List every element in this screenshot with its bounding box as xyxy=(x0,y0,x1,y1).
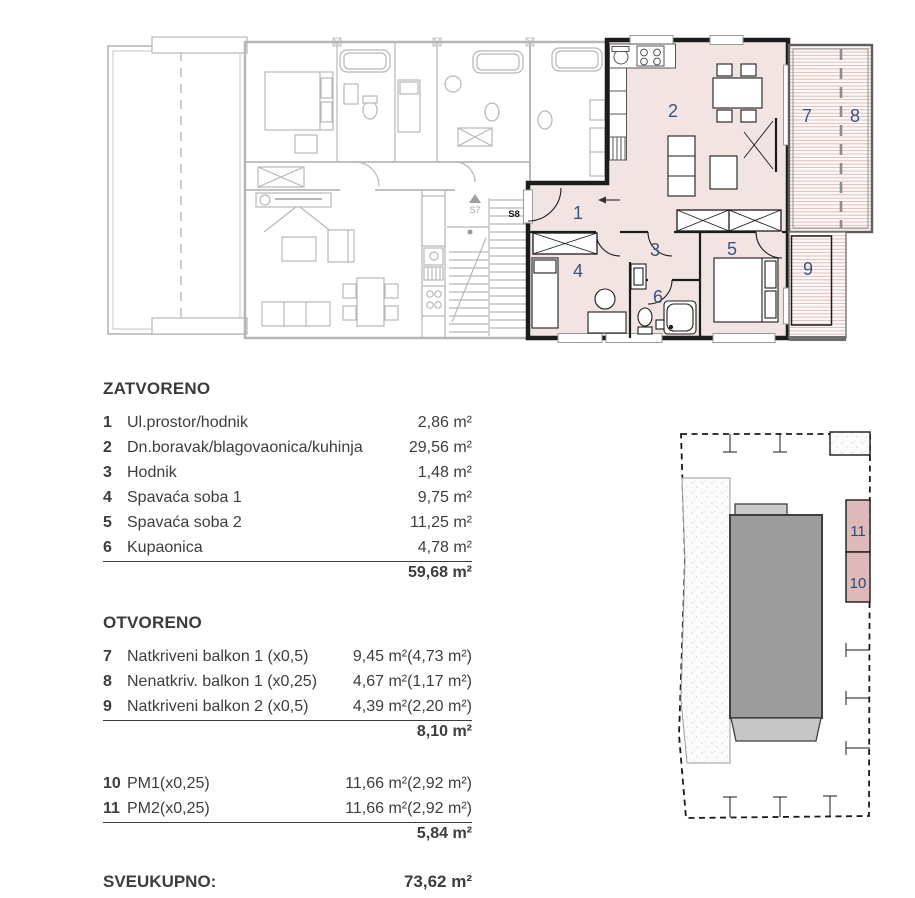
row-label: Nenatkriv. balkon 1 (x0,25) xyxy=(127,669,353,694)
grand-total-row: SVEUKUPNO: 73,62 m² xyxy=(103,869,472,894)
row-label: Natkriveni balkon 2 (x0,5) xyxy=(127,694,353,719)
otvoreno-total: 8,10 m² xyxy=(103,721,472,743)
room-number-8: 8 xyxy=(850,106,860,126)
row-value: 4,78 m² xyxy=(418,535,472,560)
row-number: 10 xyxy=(103,771,127,796)
room-number-1: 1 xyxy=(573,203,583,223)
row-number: 6 xyxy=(103,535,127,560)
table-row: 10 PM1(x0,25) 11,66 m²(2,92 m²) xyxy=(103,771,472,796)
row-label: Natkriveni balkon 1 (x0,5) xyxy=(127,644,353,669)
row-value: 11,66 m²(2,92 m²) xyxy=(345,771,472,796)
zatvoreno-rows: 1 Ul.prostor/hodnik 2,86 m² 2 Dn.boravak… xyxy=(103,410,472,560)
section-title-otvoreno: OTVORENO xyxy=(103,614,472,632)
zatvoreno-total: 59,68 m² xyxy=(103,562,472,584)
table-row: 2 Dn.boravak/blagovaonica/kuhinja 29,56 … xyxy=(103,435,472,460)
table-row: 1 Ul.prostor/hodnik 2,86 m² xyxy=(103,410,472,435)
row-value: 1,48 m² xyxy=(418,460,472,485)
row-value: 4,67 m²(1,17 m²) xyxy=(353,669,472,694)
parking-rows: 10 PM1(x0,25) 11,66 m²(2,92 m²) 11 PM2(x… xyxy=(103,771,472,821)
grand-total-value: 73,62 m² xyxy=(404,869,472,894)
grand-total-label: SVEUKUPNO: xyxy=(103,869,404,894)
stair-up-arrow-icon xyxy=(469,194,481,203)
otvoreno-rows: 7 Natkriveni balkon 1 (x0,5) 9,45 m²(4,7… xyxy=(103,644,472,719)
room-number-3: 3 xyxy=(650,240,660,260)
row-number: 3 xyxy=(103,460,127,485)
room-number-4: 4 xyxy=(573,261,583,281)
row-number: 4 xyxy=(103,485,127,510)
row-label: PM2(x0,25) xyxy=(127,796,345,821)
row-label: Kupaonica xyxy=(127,535,418,560)
room-number-5: 5 xyxy=(727,239,737,259)
room-number-9: 9 xyxy=(803,259,813,279)
table-row: 3 Hodnik 1,48 m² xyxy=(103,460,472,485)
row-value: 29,56 m² xyxy=(409,435,472,460)
row-number: 2 xyxy=(103,435,127,460)
row-number: 11 xyxy=(103,796,127,821)
table-row: 5 Spavaća soba 2 11,25 m² xyxy=(103,510,472,535)
table-row: 7 Natkriveni balkon 1 (x0,5) 9,45 m²(4,7… xyxy=(103,644,472,669)
parking-total: 5,84 m² xyxy=(103,823,472,845)
area-tables: ZATVORENO 1 Ul.prostor/hodnik 2,86 m² 2 … xyxy=(103,380,472,894)
parking-number-10: 10 xyxy=(850,575,867,592)
entry-label: S8 xyxy=(508,209,520,220)
row-value: 9,45 m²(4,73 m²) xyxy=(353,644,472,669)
row-number: 1 xyxy=(103,410,127,435)
site-building-footprint xyxy=(730,515,822,718)
balcony-9 xyxy=(789,232,846,341)
row-label: Spavaća soba 1 xyxy=(127,485,418,510)
room-number-2: 2 xyxy=(668,101,678,121)
table-row: 6 Kupaonica 4,78 m² xyxy=(103,535,472,560)
site-green-area xyxy=(681,478,730,763)
site-plan: 11 10 xyxy=(679,432,870,818)
row-label: Hodnik xyxy=(127,460,418,485)
section-title-zatvoreno: ZATVORENO xyxy=(103,380,472,398)
row-number: 8 xyxy=(103,669,127,694)
row-number: 5 xyxy=(103,510,127,535)
row-value: 4,39 m²(2,20 m²) xyxy=(353,694,472,719)
table-row: 11 PM2(x0,25) 11,66 m²(2,92 m²) xyxy=(103,796,472,821)
row-number: 9 xyxy=(103,694,127,719)
floorplan-sheet: S7 S8 xyxy=(0,0,915,898)
room-number-6: 6 xyxy=(653,287,663,307)
table-row: 9 Natkriveni balkon 2 (x0,5) 4,39 m²(2,2… xyxy=(103,694,472,719)
row-label: Dn.boravak/blagovaonica/kuhinja xyxy=(127,435,409,460)
parking-number-11: 11 xyxy=(850,523,866,540)
row-number: 7 xyxy=(103,644,127,669)
row-label: PM1(x0,25) xyxy=(127,771,345,796)
row-label: Ul.prostor/hodnik xyxy=(127,410,418,435)
row-value: 2,86 m² xyxy=(418,410,472,435)
stair-up-label: S7 xyxy=(469,205,480,215)
table-row: 8 Nenatkriv. balkon 1 (x0,25) 4,67 m²(1,… xyxy=(103,669,472,694)
row-value: 11,25 m² xyxy=(410,510,472,535)
room-number-7: 7 xyxy=(802,106,812,126)
row-value: 9,75 m² xyxy=(418,485,472,510)
balcony-7-8 xyxy=(789,45,872,232)
row-value: 11,66 m²(2,92 m²) xyxy=(345,796,472,821)
table-row: 4 Spavaća soba 1 9,75 m² xyxy=(103,485,472,510)
row-label: Spavaća soba 2 xyxy=(127,510,410,535)
